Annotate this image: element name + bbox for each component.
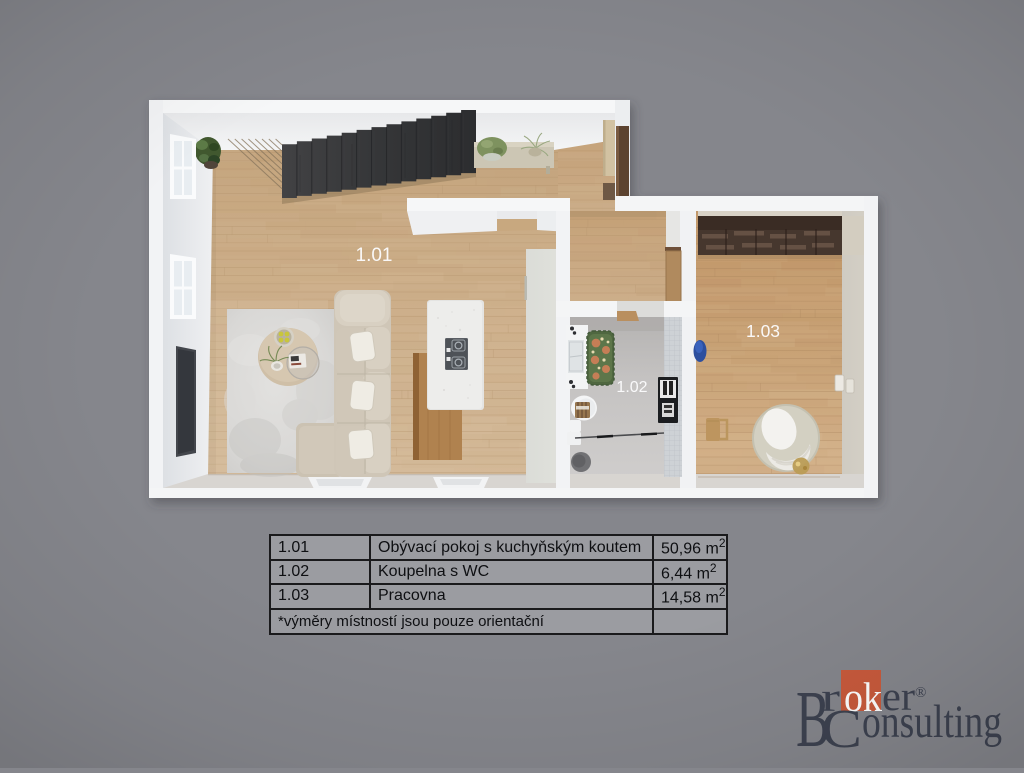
svg-text:onsulting: onsulting — [862, 696, 1002, 748]
svg-text:C: C — [821, 698, 862, 759]
svg-text:1.03: 1.03 — [746, 321, 780, 341]
svg-text:1.02: 1.02 — [616, 379, 647, 396]
svg-text:1.01: 1.01 — [356, 245, 393, 266]
